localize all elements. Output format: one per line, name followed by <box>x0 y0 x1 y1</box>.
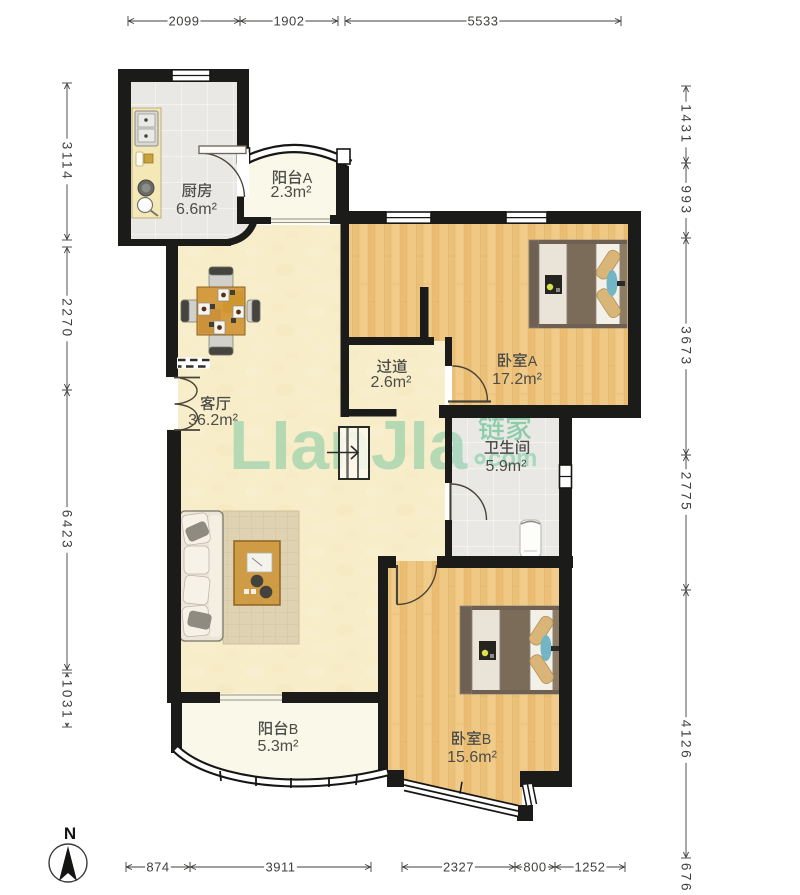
svg-text:1431: 1431 <box>679 104 694 144</box>
svg-text:2270: 2270 <box>60 298 75 338</box>
svg-text:3911: 3911 <box>266 860 296 875</box>
svg-text:1252: 1252 <box>575 860 606 875</box>
svg-text:1031: 1031 <box>60 680 75 720</box>
svg-text:B: B <box>482 732 492 748</box>
svg-text:15.6m²: 15.6m² <box>447 749 497 766</box>
svg-text:N: N <box>64 824 76 843</box>
svg-text:17.2m²: 17.2m² <box>492 371 542 388</box>
svg-text:3114: 3114 <box>60 142 75 181</box>
svg-text:800: 800 <box>523 860 546 875</box>
svg-text:2.3m²: 2.3m² <box>271 184 313 201</box>
svg-text:A: A <box>528 354 538 370</box>
svg-text:2327: 2327 <box>443 860 474 875</box>
svg-text:2.6m²: 2.6m² <box>371 374 413 391</box>
svg-text:6.6m²: 6.6m² <box>176 201 218 218</box>
svg-text:4126: 4126 <box>679 720 694 760</box>
svg-text:3673: 3673 <box>679 326 694 366</box>
svg-text:5.9m²: 5.9m² <box>486 458 528 475</box>
svg-text:676: 676 <box>679 863 694 893</box>
svg-text:1902: 1902 <box>274 14 305 29</box>
svg-text:6423: 6423 <box>60 510 75 550</box>
svg-text:2099: 2099 <box>169 14 200 29</box>
svg-text:5.3m²: 5.3m² <box>258 738 300 755</box>
svg-text:B: B <box>289 722 299 738</box>
svg-text:993: 993 <box>679 185 694 215</box>
svg-text:5533: 5533 <box>468 14 499 29</box>
svg-text:36.2m²: 36.2m² <box>188 412 238 429</box>
svg-text:2775: 2775 <box>679 472 694 512</box>
svg-text:874: 874 <box>146 860 169 875</box>
